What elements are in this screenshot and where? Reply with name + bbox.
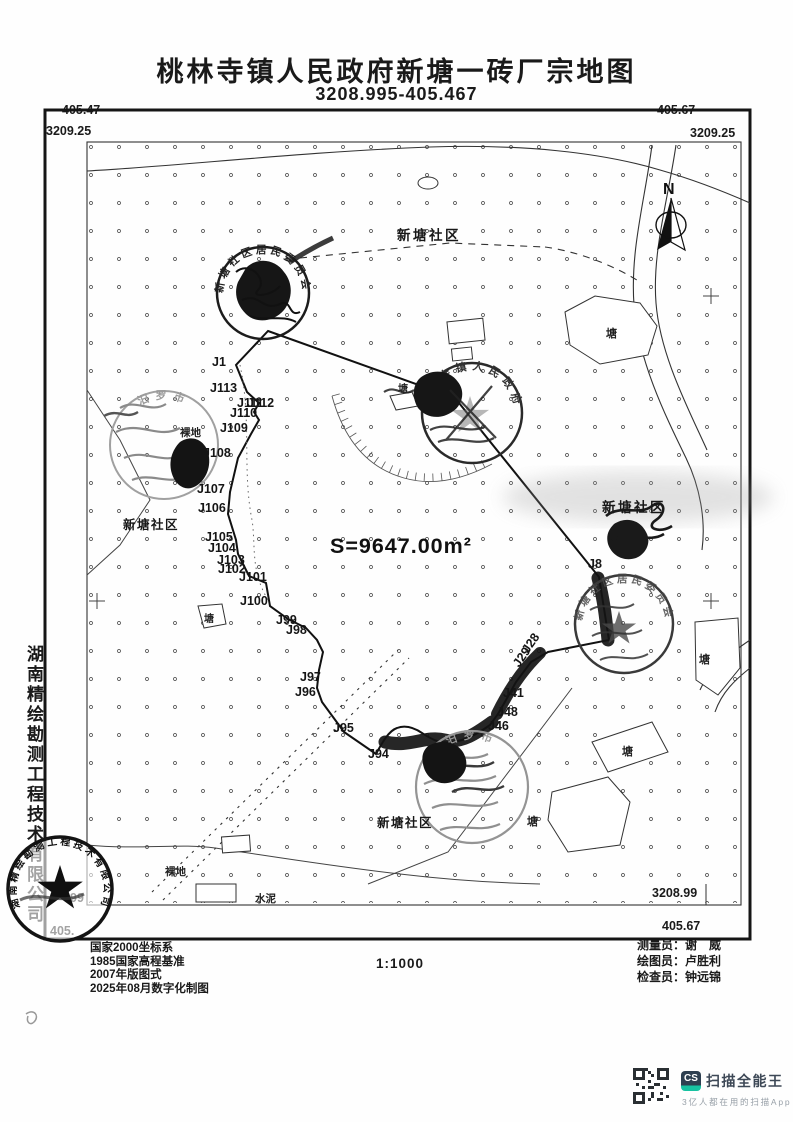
map-point-label: J104 bbox=[208, 541, 236, 555]
coord-bottom-right-easting: 405.67 bbox=[662, 919, 700, 933]
map-point-label: J112 bbox=[247, 396, 274, 410]
parcel-boundary bbox=[228, 331, 609, 754]
north-arrow-icon bbox=[656, 198, 686, 250]
grid-crosses bbox=[89, 288, 719, 609]
coord-top-right-northing: 3209.25 bbox=[690, 126, 735, 140]
ink-blob bbox=[607, 520, 648, 559]
credits-block: 测量员：谢 威 绘图员：卢胜利 检查员：钟远锦 bbox=[637, 937, 721, 985]
map-point-label: J103 bbox=[217, 553, 245, 567]
ponds bbox=[198, 177, 740, 852]
map-text-label: 新塘社区 bbox=[123, 517, 179, 532]
roads bbox=[87, 145, 750, 900]
note-coordinate-system: 国家2000坐标系 bbox=[90, 942, 209, 956]
map-text-label: 塘 bbox=[699, 652, 710, 666]
vegetation-dot-pattern bbox=[89, 144, 739, 903]
map-point-label: J8 bbox=[588, 557, 602, 571]
page-subtitle: 3208.995-405.467 bbox=[0, 84, 793, 105]
camscanner-logo-icon: CS bbox=[681, 1071, 701, 1091]
map-point-label: J97 bbox=[300, 670, 321, 684]
north-label: N bbox=[663, 181, 675, 198]
stamp-community-top: 新塘社区居民委员会 bbox=[213, 238, 333, 339]
map-text-label: 水泥 bbox=[254, 892, 276, 905]
map-point-label: J99 bbox=[276, 613, 297, 627]
dense-label-bands bbox=[385, 578, 608, 744]
map-point-label: J98 bbox=[286, 623, 307, 637]
credit-inspector: 检查员：钟远锦 bbox=[637, 969, 721, 985]
pen-mark bbox=[26, 1012, 36, 1024]
ink-blob bbox=[170, 438, 209, 488]
map-text-label: 塘 bbox=[527, 814, 538, 828]
pond-bottom bbox=[548, 777, 630, 852]
map-point-label: J48 bbox=[497, 705, 518, 719]
map-scale: 1:1000 bbox=[300, 956, 500, 971]
map-point-label: J111 bbox=[237, 396, 263, 410]
surveyor-company-sidebar-text: 湖南精绘勘测工程技术有限公司 bbox=[21, 645, 46, 925]
map-point-label: J41 bbox=[503, 686, 524, 700]
coord-top-left-easting: 405.47 bbox=[62, 103, 100, 117]
pond-top-right bbox=[565, 296, 657, 364]
stamp-right-ring-text: 新塘社区居民委员会 bbox=[572, 573, 676, 622]
coord-bottom-right-northing: 3208.99 bbox=[652, 886, 697, 900]
map-point-label: J29 bbox=[510, 645, 533, 670]
stamp-left-ring-text: 汨罗市 bbox=[136, 389, 193, 408]
parcel-area-label: S=9647.00m² bbox=[330, 534, 472, 558]
credit-surveyor: 测量员：谢 威 bbox=[637, 937, 721, 953]
map-text-label: 新塘社区 bbox=[397, 227, 461, 243]
map-text-label: 新塘社区 bbox=[377, 815, 433, 830]
map-basis-notes: 国家2000坐标系 1985国家高程基准 2007年版图式 2025年08月数字… bbox=[90, 942, 209, 996]
map-point-label: J108 bbox=[203, 446, 231, 460]
pond-small-mid bbox=[390, 392, 418, 410]
note-symbology-edition: 2007年版图式 bbox=[90, 969, 209, 983]
coord-bottom-left-easting-partial: 405. bbox=[50, 924, 74, 938]
pond-small-left bbox=[198, 604, 226, 628]
coord-top-right-easting: 405.67 bbox=[657, 103, 695, 117]
map-text-label: 塘 bbox=[622, 744, 633, 758]
map-frame bbox=[45, 110, 750, 939]
scanned-parcel-map-page: { "page": { "title": "桃林寺镇人民政府新塘一砖厂宗地图",… bbox=[0, 0, 793, 1122]
camscanner-app-name: 扫描全能王 bbox=[706, 1071, 784, 1091]
map-text-label: 塘 bbox=[398, 382, 408, 395]
stamp-middle-ring-text: 桃林寺镇人民政府 bbox=[418, 358, 526, 410]
credit-draftsman: 绘图员：卢胜利 bbox=[637, 953, 721, 969]
map-point-label: J46 bbox=[488, 719, 509, 733]
svg-text:新塘社区居民委员会: 新塘社区居民委员会 bbox=[213, 244, 314, 294]
stamp-government-middle: 桃林寺镇人民政府 bbox=[384, 358, 526, 463]
map-point-label: J107 bbox=[197, 482, 225, 496]
ink-blob bbox=[422, 742, 466, 783]
map-point-label: J95 bbox=[333, 721, 354, 735]
map-point-label: J94 bbox=[368, 747, 389, 761]
stamp-community-right: 新塘社区居民委员会 bbox=[572, 504, 676, 673]
ink-streak bbox=[290, 238, 333, 262]
svg-text:新塘社区居民委员会: 新塘社区居民委员会 bbox=[572, 573, 676, 622]
map-point-label: J96 bbox=[295, 685, 316, 699]
map-labels-layer: J1J113J111J112J110J109J108J107J106J105J1… bbox=[123, 181, 710, 905]
slope-hatch-ticks bbox=[332, 394, 485, 482]
stamp-bottom-ring-text: 汨罗市 bbox=[444, 729, 501, 748]
note-height-datum: 1985国家高程基准 bbox=[90, 956, 209, 970]
stamp-top-ring-text: 新塘社区居民委员会 bbox=[213, 244, 314, 294]
pond-right-edge bbox=[695, 618, 740, 695]
map-point-label: J106 bbox=[198, 501, 226, 515]
map-point-label: J113 bbox=[210, 381, 237, 395]
map-point-label: J101 bbox=[239, 570, 267, 584]
svg-text:汨罗市: 汨罗市 bbox=[444, 729, 501, 748]
svg-text:汨罗市: 汨罗市 bbox=[136, 389, 193, 408]
map-point-label: J109 bbox=[220, 421, 248, 435]
map-point-label: J100 bbox=[240, 594, 268, 608]
stamp-faded-bottom: 汨罗市 bbox=[416, 729, 528, 843]
stamp-faded-left: 汨罗市 bbox=[104, 389, 218, 499]
map-point-label: J28 bbox=[519, 631, 542, 656]
svg-text:桃林寺镇人民政府: 桃林寺镇人民政府 bbox=[418, 358, 526, 410]
map-point-label: J1 bbox=[212, 355, 226, 369]
ink-blob bbox=[236, 261, 291, 321]
qr-code bbox=[633, 1068, 669, 1104]
map-point-label: J102 bbox=[218, 562, 246, 576]
coord-top-left-northing: 3209.25 bbox=[46, 124, 91, 138]
map-point-label: J105 bbox=[205, 530, 233, 544]
camscanner-tagline: 3亿人都在用的扫描App bbox=[682, 1096, 791, 1108]
scan-smudge bbox=[503, 471, 773, 523]
slope-hatch-line bbox=[332, 396, 492, 482]
map-text-label: 塘 bbox=[606, 326, 617, 340]
note-digitization-date: 2025年08月数字化制图 bbox=[90, 983, 209, 997]
map-text-label: 新塘社区 bbox=[602, 499, 666, 515]
map-text-label: 裸地 bbox=[165, 865, 186, 878]
buildings bbox=[196, 318, 485, 902]
coord-bottom-left-northing-partial: 99 bbox=[70, 891, 84, 905]
pond-small-top bbox=[418, 177, 438, 189]
map-text-label: 塘 bbox=[204, 612, 214, 625]
ink-blob bbox=[414, 372, 463, 417]
map-point-label: J110 bbox=[230, 406, 257, 420]
pond-right-2 bbox=[592, 722, 668, 772]
map-text-label: 裸地 bbox=[180, 426, 201, 439]
